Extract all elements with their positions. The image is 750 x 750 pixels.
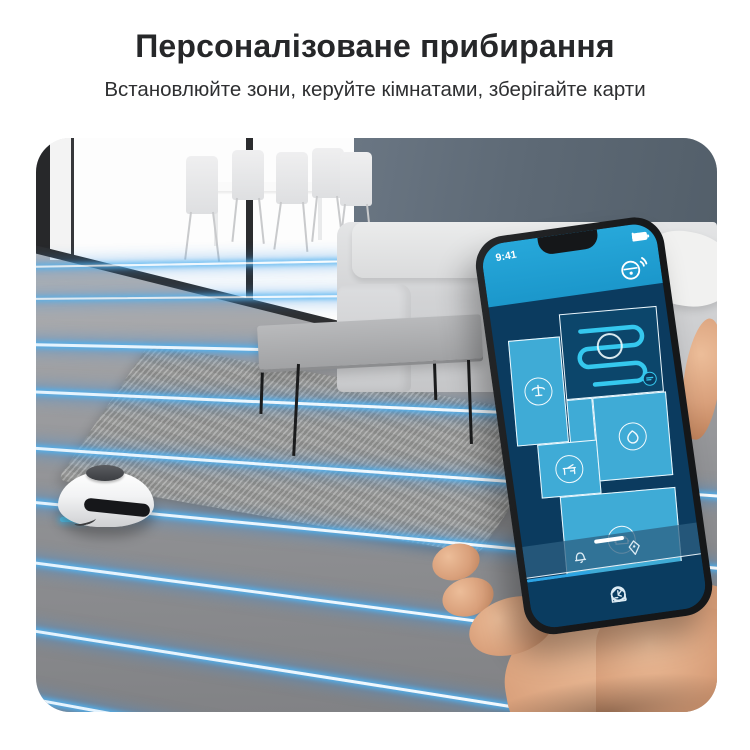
table-icon [523,376,553,406]
bell-icon[interactable] [571,548,589,566]
desk-icon [554,454,584,484]
robot-lidar-puck [86,465,124,481]
lifestyle-photo: 9:41 [36,138,717,712]
window-pillar [50,138,74,260]
status-time: 9:41 [495,249,518,264]
robot-voice-icon[interactable] [617,253,650,283]
status-icons [632,232,648,242]
room-living[interactable] [508,336,569,446]
battery-icon [632,232,648,242]
page-subtitle: Встановлюйте зони, керуйте кімнатами, зб… [0,78,750,102]
dining-chair [186,156,218,214]
gauge-icon[interactable] [607,583,628,604]
dining-chair [340,152,372,206]
drag-handle[interactable] [594,536,624,544]
page-title: Персоналізоване прибирання [0,28,750,65]
dining-chair [276,152,308,204]
dining-chair [232,150,264,200]
robot-vacuum [58,465,154,527]
robot-position-badge [642,371,657,386]
window-frame [36,138,50,252]
promo-page: Персоналізоване прибирання Встановлюйте … [0,0,750,750]
washer-icon [618,421,648,451]
room-study[interactable] [537,440,601,499]
pin-icon[interactable] [626,538,642,557]
room-cleaning[interactable] [559,306,664,400]
room-laundry[interactable] [592,391,673,481]
